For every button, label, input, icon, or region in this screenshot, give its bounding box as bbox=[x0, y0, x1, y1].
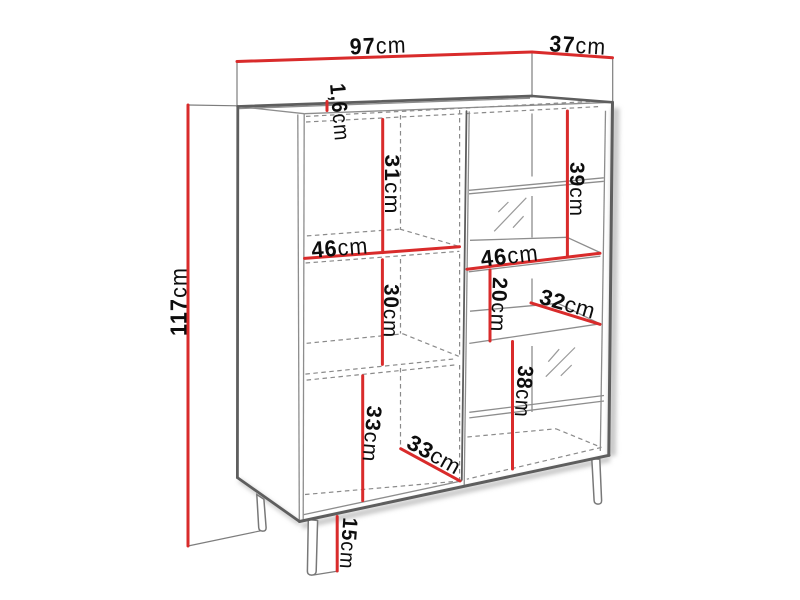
svg-text:38cm: 38cm bbox=[510, 365, 539, 419]
svg-text:117cm: 117cm bbox=[166, 267, 192, 336]
svg-text:20cm: 20cm bbox=[486, 277, 511, 333]
svg-text:30cm: 30cm bbox=[379, 284, 403, 338]
svg-text:37cm: 37cm bbox=[549, 30, 607, 59]
svg-text:46cm: 46cm bbox=[310, 232, 369, 262]
svg-text:39cm: 39cm bbox=[565, 162, 588, 217]
svg-text:15cm: 15cm bbox=[335, 517, 362, 570]
svg-text:31cm: 31cm bbox=[380, 155, 403, 215]
svg-text:97cm: 97cm bbox=[349, 32, 407, 60]
svg-text:1,6cm: 1,6cm bbox=[325, 82, 355, 142]
